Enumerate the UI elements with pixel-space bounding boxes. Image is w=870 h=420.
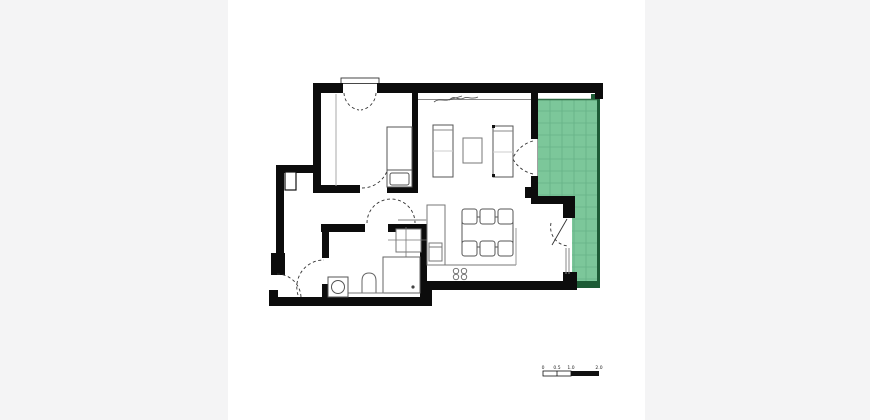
wall-top-bedroom-left (313, 83, 343, 93)
wall-bedroom-east (412, 93, 418, 193)
wall-west (276, 173, 284, 253)
terrace-dining-door-leaf (552, 219, 567, 245)
wall-bath-west-upper (322, 224, 329, 258)
scale-bar: 0 0.5 1.0 2.0 (542, 365, 603, 376)
wall-living-east-ext (525, 187, 532, 198)
washing-machine (328, 277, 348, 297)
sofa-right (492, 125, 513, 177)
french-door-arc-bottom (513, 159, 533, 174)
terrace-bottom-edge (575, 281, 600, 288)
wall-bottom-east (423, 281, 577, 290)
wall-terrace-jamb (563, 196, 575, 218)
floor-plan-drawing: 0 0.5 1.0 2.0 (0, 0, 870, 420)
wall-entry-pier (271, 253, 285, 275)
terrace-floor (538, 99, 597, 288)
scale-label-2: 2.0 (595, 365, 602, 371)
wall-terrace-step (538, 196, 567, 204)
stove-burners (453, 268, 466, 279)
floor-plan-canvas: 0 0.5 1.0 2.0 (0, 0, 870, 420)
wall-living-east-lower (531, 176, 538, 204)
shower-drain (411, 285, 414, 288)
wall-living-east-upper (531, 92, 538, 139)
scale-label-1: 1.0 (567, 365, 574, 371)
terrace-right-edge (597, 95, 600, 288)
wall-ne-corner (595, 93, 603, 99)
bedroom-window-sill (341, 78, 379, 84)
bed (387, 127, 412, 187)
bedroom-window-casement-left (344, 93, 359, 110)
bedroom-window-casement-right (361, 93, 376, 110)
sofa-left (433, 125, 453, 177)
wall-bedroom-south-left (313, 185, 360, 193)
wall-se-corner (563, 272, 577, 286)
scale-label-0: 0 (542, 365, 545, 371)
wall-top-main (377, 83, 603, 93)
coffee-table (463, 138, 482, 163)
wall-bedroom-west (313, 93, 321, 193)
scale-bar-black-segment (571, 371, 599, 376)
shower (383, 257, 420, 293)
bedroom-door-arc (362, 161, 389, 188)
kitchen-appliance (429, 243, 442, 261)
wall-bottom-west (269, 297, 430, 306)
duct-shaft (285, 172, 296, 190)
bathroom-door-arc (297, 260, 324, 295)
scale-label-05: 0.5 (553, 365, 560, 371)
kitchen-cabinet (427, 205, 445, 265)
french-door-arc-top (513, 141, 533, 158)
toilet (362, 273, 376, 293)
